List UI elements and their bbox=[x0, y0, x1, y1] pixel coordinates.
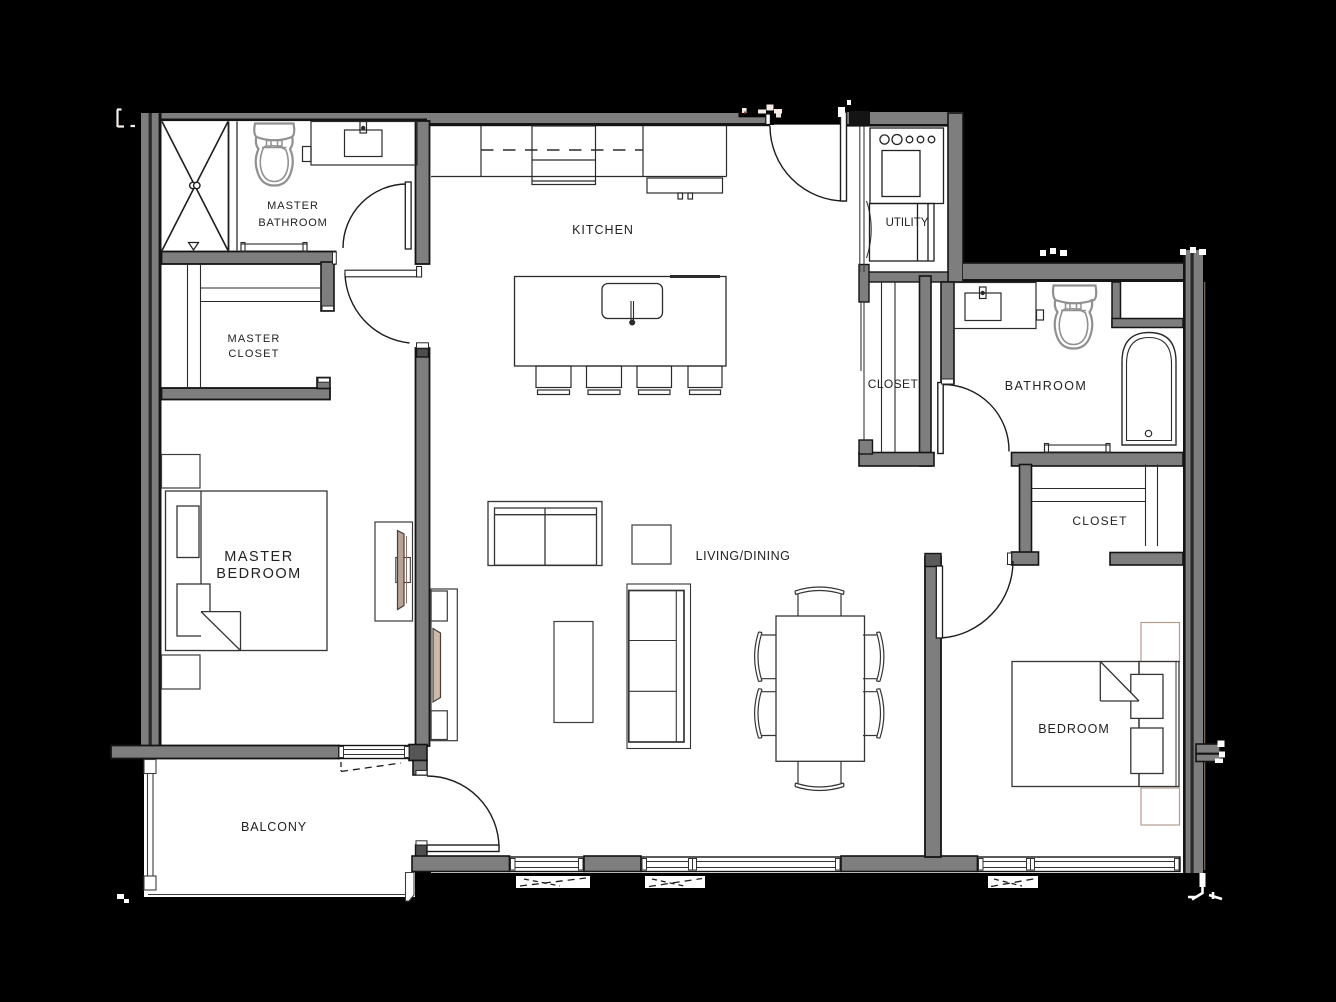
svg-text:MASTER: MASTER bbox=[227, 333, 280, 345]
svg-text:KITCHEN: KITCHEN bbox=[572, 223, 634, 237]
svg-text:BALCONY: BALCONY bbox=[241, 820, 307, 834]
svg-text:BEDROOM: BEDROOM bbox=[1038, 722, 1110, 736]
svg-text:BATHROOM: BATHROOM bbox=[258, 217, 327, 229]
svg-text:CLOSET: CLOSET bbox=[868, 377, 919, 391]
svg-text:UTILITY: UTILITY bbox=[886, 217, 929, 229]
svg-text:MASTER: MASTER bbox=[267, 200, 319, 212]
svg-text:BATHROOM: BATHROOM bbox=[1005, 379, 1088, 393]
svg-text:CLOSET: CLOSET bbox=[228, 348, 279, 360]
svg-text:CLOSET: CLOSET bbox=[1072, 514, 1127, 528]
svg-text:BEDROOM: BEDROOM bbox=[216, 566, 301, 582]
svg-text:MASTER: MASTER bbox=[224, 549, 293, 565]
svg-text:LIVING/DINING: LIVING/DINING bbox=[696, 549, 791, 563]
